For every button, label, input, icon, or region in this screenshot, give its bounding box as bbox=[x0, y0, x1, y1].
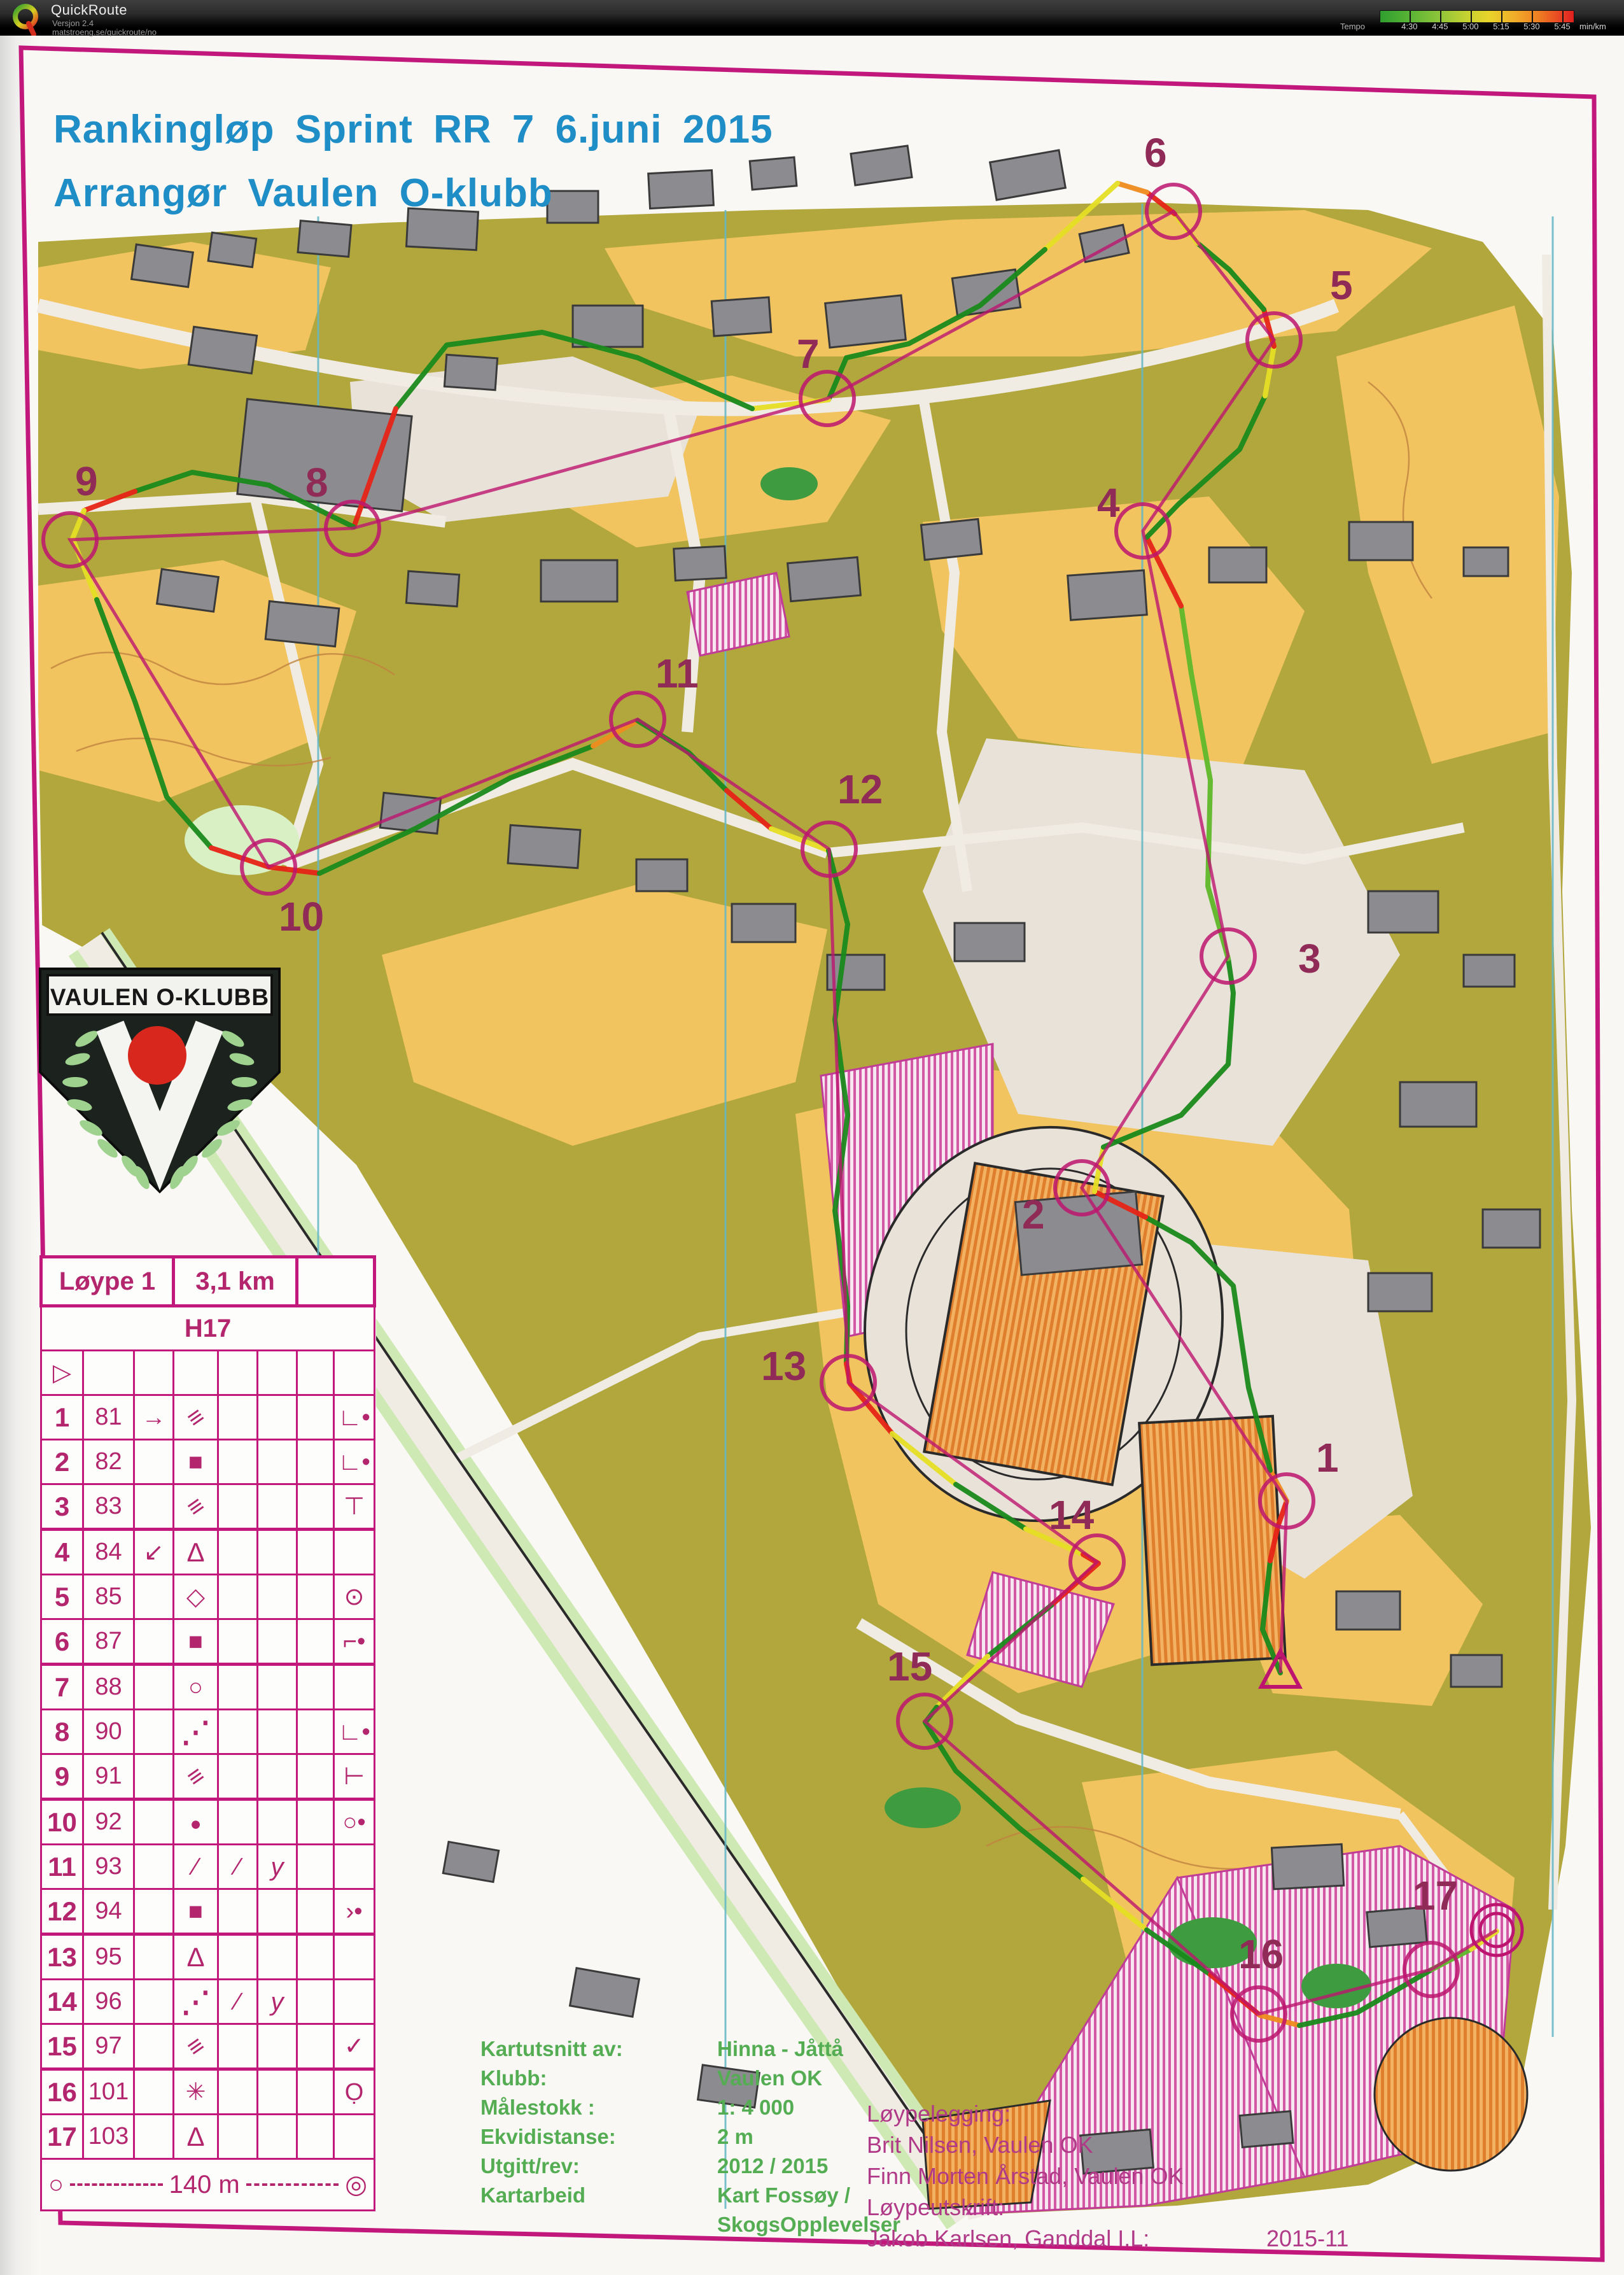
tempo-tick bbox=[1471, 11, 1472, 22]
control-row-4: 484↙Δ bbox=[41, 1530, 375, 1575]
symbol-cell: ⊢ bbox=[334, 1754, 375, 1800]
control-label-7: 7 bbox=[797, 331, 820, 377]
symbol-cell bbox=[134, 1575, 174, 1619]
credit-row: Kartutsnitt av:Hinna - Jåttå bbox=[480, 2034, 900, 2064]
stairs-icon: ≡ bbox=[182, 1491, 209, 1521]
symbol-cell bbox=[334, 1665, 375, 1710]
symbol-cell: y bbox=[258, 1980, 297, 2024]
control-label-15: 15 bbox=[887, 1644, 932, 1689]
symbol-cell bbox=[297, 2115, 334, 2159]
start-icon: ▷ bbox=[41, 1351, 83, 1395]
app-title: QuickRoute bbox=[51, 2, 127, 18]
crossing-icon: ✳ bbox=[186, 2079, 206, 2106]
building-icon: ■ bbox=[188, 1898, 203, 1925]
symbol-cell bbox=[297, 2024, 334, 2069]
quickroute-toolbar: QuickRoute Versjon 2.4 matstroeng.se/qui… bbox=[0, 0, 1624, 36]
map-credits-block: Kartutsnitt av:Hinna - JåttåKlubb:Vaulen… bbox=[480, 2034, 900, 2239]
symbol-cell bbox=[134, 2024, 174, 2069]
symbol-cell: ○ bbox=[174, 1665, 218, 1710]
symbol-cell bbox=[297, 1980, 334, 2024]
symbol-cell: ∟• bbox=[334, 1710, 375, 1754]
symbol-cell: Ọ bbox=[334, 2069, 375, 2115]
control-number: 1 bbox=[41, 1395, 83, 1440]
control-number: 9 bbox=[41, 1754, 83, 1800]
control-label-13: 13 bbox=[761, 1343, 806, 1389]
quickroute-logo-icon bbox=[10, 3, 43, 36]
symbol-cell bbox=[134, 1440, 174, 1484]
control-number: 11 bbox=[41, 1845, 83, 1889]
control-code: 94 bbox=[83, 1889, 134, 1934]
map-title-line1: Rankingløp Sprint RR 7 6.juni 2015 bbox=[53, 107, 773, 152]
circle-dot-right-icon: ○• bbox=[342, 1809, 365, 1836]
symbol-cell bbox=[134, 1665, 174, 1710]
t-left-icon: ⊢ bbox=[344, 1763, 365, 1790]
symbol-cell bbox=[218, 1619, 258, 1665]
symbol-cell bbox=[297, 1575, 334, 1619]
slash-dashed-icon: ⁄ bbox=[193, 1854, 197, 1880]
symbol-cell: ≡ bbox=[174, 1754, 218, 1800]
symbol-cell bbox=[218, 2069, 258, 2115]
control-code: 95 bbox=[83, 1934, 134, 1980]
symbol-cell bbox=[297, 1619, 334, 1665]
course-credit-line: Brit Nilsen, Vaulen OK bbox=[867, 2129, 1389, 2160]
symbol-cell bbox=[334, 1934, 375, 1980]
symbol-cell bbox=[258, 1484, 297, 1530]
symbol-cell bbox=[218, 1934, 258, 1980]
symbol-cell: ■ bbox=[174, 1889, 218, 1934]
symbol-cell bbox=[174, 1351, 218, 1395]
slash-icon: ∕ bbox=[235, 1854, 239, 1880]
symbol-cell: ● bbox=[174, 1800, 218, 1845]
control-label-1: 1 bbox=[1316, 1435, 1339, 1481]
building-icon: ■ bbox=[188, 1628, 203, 1655]
symbol-cell bbox=[297, 2069, 334, 2115]
control-number: 4 bbox=[41, 1530, 83, 1575]
map-title-line2: Arrangør Vaulen O-klubb bbox=[53, 171, 553, 216]
corner-dot-icon: ∟• bbox=[338, 1404, 370, 1431]
control-row-14: 1496⋰⁄y bbox=[41, 1980, 375, 2024]
symbol-cell: ◇ bbox=[174, 1575, 218, 1619]
app-url: matstroeng.se/quickroute/no bbox=[52, 27, 157, 37]
control-label-17: 17 bbox=[1413, 1873, 1458, 1919]
control-row-15: 1597≡✓ bbox=[41, 2024, 375, 2069]
symbol-cell: ⁄ bbox=[174, 1845, 218, 1889]
tempo-legend-label: Tempo bbox=[1340, 22, 1365, 31]
control-number: 6 bbox=[41, 1619, 83, 1665]
tempo-tick bbox=[1440, 11, 1441, 22]
symbol-cell bbox=[297, 1889, 334, 1934]
symbol-cell bbox=[134, 2115, 174, 2159]
course-name: Løype 1 bbox=[41, 1257, 174, 1306]
symbol-cell bbox=[297, 1934, 334, 1980]
arrow-right-icon: → bbox=[142, 1404, 166, 1431]
tempo-gradient-bar bbox=[1380, 10, 1574, 23]
control-row-2: 282■∟• bbox=[41, 1440, 375, 1484]
symbol-cell: Δ bbox=[174, 2115, 218, 2159]
desc-class-row: H17 bbox=[41, 1306, 375, 1351]
control-label-2: 2 bbox=[1022, 1192, 1045, 1237]
circle-icon: ○ bbox=[188, 1674, 203, 1701]
symbol-cell: ∟• bbox=[334, 1440, 375, 1484]
finish-distance: 140 m bbox=[169, 2171, 240, 2199]
course-credit-line: Løypeutskrift: bbox=[867, 2192, 1389, 2223]
symbol-cell: ≡ bbox=[174, 1395, 218, 1440]
junction-y-icon: y bbox=[271, 1988, 284, 2016]
tempo-tick bbox=[1562, 11, 1564, 22]
symbol-cell: Δ bbox=[174, 1530, 218, 1575]
t-bar-icon: ⊤ bbox=[344, 1493, 365, 1520]
symbol-cell bbox=[134, 1800, 174, 1845]
control-label-12: 12 bbox=[837, 766, 883, 812]
symbol-cell: ⊤ bbox=[334, 1484, 375, 1530]
control-row-5: 585◇⊙ bbox=[41, 1575, 375, 1619]
corner-dot-icon: ∟• bbox=[338, 1449, 370, 1476]
symbol-cell: ✓ bbox=[334, 2024, 375, 2069]
angle-dot-icon: ›• bbox=[346, 1898, 363, 1925]
course-length: 3,1 km bbox=[174, 1257, 297, 1306]
symbol-cell: → bbox=[134, 1395, 174, 1440]
course-credit-line: Finn Morten Årstad, Vaulen OK bbox=[867, 2160, 1389, 2192]
control-number: 12 bbox=[41, 1889, 83, 1934]
control-code: 97 bbox=[83, 2024, 134, 2069]
control-number: 15 bbox=[41, 2024, 83, 2069]
symbol-cell bbox=[134, 2069, 174, 2115]
control-code: 81 bbox=[83, 1395, 134, 1440]
control-code bbox=[83, 1351, 134, 1395]
symbol-cell bbox=[134, 1619, 174, 1665]
symbol-cell bbox=[218, 1754, 258, 1800]
symbol-cell bbox=[297, 1800, 334, 1845]
last-control-icon: ○ bbox=[48, 2171, 64, 2199]
symbol-cell bbox=[218, 2024, 258, 2069]
symbol-cell bbox=[297, 1395, 334, 1440]
control-row-7: 788○ bbox=[41, 1665, 375, 1710]
desc-header-row: Løype 1 3,1 km bbox=[41, 1257, 375, 1306]
control-description-sheet: Løype 1 3,1 km H17 ▷181→≡∟•282■∟•383≡⊤48… bbox=[39, 1255, 376, 2211]
corner-dot-icon: ∟• bbox=[338, 1719, 370, 1745]
symbol-cell bbox=[134, 1710, 174, 1754]
control-label-14: 14 bbox=[1049, 1492, 1095, 1538]
symbol-cell bbox=[218, 2115, 258, 2159]
symbol-cell bbox=[297, 1710, 334, 1754]
symbol-cell: ⌐• bbox=[334, 1619, 375, 1665]
control-row-16: 16101✳Ọ bbox=[41, 2069, 375, 2115]
wall-icon: ⋰ bbox=[181, 1985, 211, 2018]
symbol-cell bbox=[218, 1710, 258, 1754]
symbol-cell bbox=[297, 1530, 334, 1575]
symbol-cell bbox=[297, 1440, 334, 1484]
symbol-cell bbox=[258, 1395, 297, 1440]
logo-red-dot bbox=[128, 1026, 186, 1085]
symbol-cell: ⊙ bbox=[334, 1575, 375, 1619]
control-number: 13 bbox=[41, 1934, 83, 1980]
symbol-cell bbox=[218, 1484, 258, 1530]
tree-icon: Δ bbox=[186, 1942, 204, 1972]
symbol-cell bbox=[134, 1351, 174, 1395]
control-row-10: 1092●○• bbox=[41, 1800, 375, 1845]
control-label-6: 6 bbox=[1144, 130, 1167, 176]
control-number: 7 bbox=[41, 1665, 83, 1710]
vaulen-o-klubb-logo: VAULEN O-KLUBB bbox=[35, 965, 284, 1195]
control-code: 92 bbox=[83, 1800, 134, 1845]
control-label-8: 8 bbox=[305, 460, 328, 505]
symbol-cell bbox=[297, 1665, 334, 1710]
symbol-cell bbox=[134, 1889, 174, 1934]
symbol-cell bbox=[258, 2069, 297, 2115]
symbol-cell bbox=[297, 1484, 334, 1530]
control-code: 84 bbox=[83, 1530, 134, 1575]
symbol-cell bbox=[297, 1845, 334, 1889]
tempo-tick bbox=[1501, 11, 1502, 22]
control-number: 3 bbox=[41, 1484, 83, 1530]
control-row-12: 1294■›• bbox=[41, 1889, 375, 1934]
control-label-5: 5 bbox=[1330, 262, 1353, 308]
symbol-cell: ⁄ bbox=[218, 1980, 258, 2024]
control-label-4: 4 bbox=[1097, 480, 1120, 526]
control-code: 82 bbox=[83, 1440, 134, 1484]
symbol-cell bbox=[218, 1395, 258, 1440]
symbol-cell bbox=[258, 2024, 297, 2069]
symbol-cell: ≡ bbox=[174, 1484, 218, 1530]
symbol-cell: y bbox=[258, 1845, 297, 1889]
control-code: 91 bbox=[83, 1754, 134, 1800]
symbol-cell bbox=[218, 1889, 258, 1934]
symbol-cell: Δ bbox=[174, 1934, 218, 1980]
tempo-tick-label: 5:30 bbox=[1523, 22, 1539, 31]
control-row-13: 1395Δ bbox=[41, 1934, 375, 1980]
building-icon: ■ bbox=[188, 1449, 203, 1476]
symbol-cell bbox=[218, 1351, 258, 1395]
symbol-cell bbox=[258, 1710, 297, 1754]
control-code: 96 bbox=[83, 1980, 134, 2024]
symbol-cell: ∟• bbox=[334, 1395, 375, 1440]
arrow-downleft-icon: ↙ bbox=[144, 1539, 164, 1566]
control-label-10: 10 bbox=[279, 894, 324, 940]
symbol-cell bbox=[258, 1351, 297, 1395]
course-credits-block: 2015-11 Løypelegging:Brit Nilsen, Vaulen… bbox=[867, 2098, 1389, 2254]
wall-icon: ⋰ bbox=[181, 1715, 211, 1749]
symbol-cell bbox=[258, 1934, 297, 1980]
symbol-cell: ∕ bbox=[218, 1845, 258, 1889]
app-version: Versjon 2.4 bbox=[52, 18, 94, 28]
tempo-tick bbox=[1410, 11, 1411, 22]
control-row-11: 1193⁄∕y bbox=[41, 1845, 375, 1889]
symbol-cell bbox=[134, 1934, 174, 1980]
credit-row: SkogsOpplevelser bbox=[480, 2210, 900, 2239]
credit-row: Ekvidistanse:2 m bbox=[480, 2122, 900, 2152]
control-number: 16 bbox=[41, 2069, 83, 2115]
symbol-cell: ↙ bbox=[134, 1530, 174, 1575]
tempo-tick-label: 5:45 bbox=[1554, 22, 1570, 31]
symbol-cell bbox=[258, 2115, 297, 2159]
control-code: 101 bbox=[83, 2069, 134, 2115]
symbol-cell bbox=[134, 1484, 174, 1530]
finish-icon: ◎ bbox=[345, 2170, 367, 2199]
symbol-cell: ⋰ bbox=[174, 1710, 218, 1754]
symbol-cell bbox=[334, 1530, 375, 1575]
circle-dot-icon: ⊙ bbox=[344, 1584, 365, 1610]
symbol-cell: ≡ bbox=[174, 2024, 218, 2069]
control-number: 14 bbox=[41, 1980, 83, 2024]
symbol-cell bbox=[134, 1845, 174, 1889]
symbol-cell bbox=[297, 1351, 334, 1395]
stairs-icon: ≡ bbox=[182, 2031, 209, 2060]
control-row-1: 181→≡∟• bbox=[41, 1395, 375, 1440]
control-code: 93 bbox=[83, 1845, 134, 1889]
symbol-cell bbox=[218, 1530, 258, 1575]
symbol-cell: ⋰ bbox=[174, 1980, 218, 2024]
control-row-6: 687■⌐• bbox=[41, 1619, 375, 1665]
symbol-cell bbox=[258, 1619, 297, 1665]
tempo-unit: min/km bbox=[1579, 22, 1606, 31]
control-row-17: 17103Δ bbox=[41, 2115, 375, 2159]
tempo-tick-label: 4:30 bbox=[1401, 22, 1417, 31]
symbol-cell bbox=[134, 1980, 174, 2024]
control-code: 87 bbox=[83, 1619, 134, 1665]
tempo-tick-label: 5:15 bbox=[1493, 22, 1509, 31]
control-code: 103 bbox=[83, 2115, 134, 2159]
tempo-tick-label: 4:45 bbox=[1432, 22, 1448, 31]
symbol-cell: ›• bbox=[334, 1889, 375, 1934]
symbol-cell bbox=[134, 1754, 174, 1800]
credit-row: Klubb:Vaulen OK bbox=[480, 2064, 900, 2093]
control-code: 85 bbox=[83, 1575, 134, 1619]
stairs-icon: ≡ bbox=[182, 1761, 209, 1791]
control-label-3: 3 bbox=[1298, 936, 1321, 982]
stairs-icon: ≡ bbox=[182, 1402, 209, 1432]
control-code: 90 bbox=[83, 1710, 134, 1754]
symbol-cell bbox=[258, 1800, 297, 1845]
circle-dot-below-icon: Ọ bbox=[345, 2079, 364, 2106]
symbol-cell bbox=[218, 1440, 258, 1484]
symbol-cell bbox=[334, 1845, 375, 1889]
logo-banner-text: VAULEN O-KLUBB bbox=[50, 984, 269, 1010]
slash-dashed-icon: ⁄ bbox=[235, 1989, 239, 2015]
symbol-cell bbox=[218, 1575, 258, 1619]
symbol-cell bbox=[258, 1754, 297, 1800]
control-label-11: 11 bbox=[655, 651, 699, 696]
tree-icon: Δ bbox=[186, 2122, 204, 2152]
tempo-tick bbox=[1532, 11, 1533, 22]
control-number: 2 bbox=[41, 1440, 83, 1484]
corner-dot-ne-icon: ⌐• bbox=[343, 1628, 366, 1655]
symbol-cell bbox=[218, 1800, 258, 1845]
control-number: 8 bbox=[41, 1710, 83, 1754]
check-icon: ✓ bbox=[344, 2033, 365, 2060]
symbol-cell bbox=[334, 1351, 375, 1395]
course-class: H17 bbox=[41, 1306, 375, 1351]
credit-row: Utgitt/rev:2012 / 2015 bbox=[480, 2152, 900, 2181]
control-code: 88 bbox=[83, 1665, 134, 1710]
diamond-icon: ◇ bbox=[186, 1584, 205, 1610]
symbol-cell: ✳ bbox=[174, 2069, 218, 2115]
finish-distance-row: ○140 m◎ bbox=[41, 2159, 375, 2211]
control-code: 83 bbox=[83, 1484, 134, 1530]
symbol-cell bbox=[334, 2115, 375, 2159]
symbol-cell bbox=[334, 1980, 375, 2024]
control-number: 10 bbox=[41, 1800, 83, 1845]
symbol-cell bbox=[218, 1665, 258, 1710]
tree-icon: Δ bbox=[186, 1537, 204, 1567]
tempo-tick-label: 5:00 bbox=[1462, 22, 1478, 31]
control-row-9: 991≡⊢ bbox=[41, 1754, 375, 1800]
symbol-cell bbox=[258, 1530, 297, 1575]
symbol-cell: ○• bbox=[334, 1800, 375, 1845]
control-row-8: 890⋰∟• bbox=[41, 1710, 375, 1754]
course-credit-line: Løypelegging: bbox=[867, 2098, 1389, 2129]
symbol-cell bbox=[258, 1889, 297, 1934]
symbol-cell bbox=[297, 1754, 334, 1800]
start-row: ▷ bbox=[41, 1351, 375, 1395]
dot-icon: ● bbox=[190, 1814, 201, 1835]
credit-row: Målestokk :1: 4 000 bbox=[480, 2093, 900, 2122]
symbol-cell bbox=[258, 1440, 297, 1484]
credit-row: KartarbeidKart Fossøy / bbox=[480, 2181, 900, 2210]
symbol-cell: ■ bbox=[174, 1440, 218, 1484]
symbol-cell bbox=[258, 1665, 297, 1710]
symbol-cell: ■ bbox=[174, 1619, 218, 1665]
symbol-cell bbox=[258, 1575, 297, 1619]
control-row-3: 383≡⊤ bbox=[41, 1484, 375, 1530]
control-number: 17 bbox=[41, 2115, 83, 2159]
control-label-9: 9 bbox=[75, 458, 98, 504]
print-date: 2015-11 bbox=[1266, 2223, 1348, 2254]
control-number: 5 bbox=[41, 1575, 83, 1619]
junction-y-icon: y bbox=[271, 1853, 284, 1881]
control-label-16: 16 bbox=[1238, 1931, 1284, 1977]
